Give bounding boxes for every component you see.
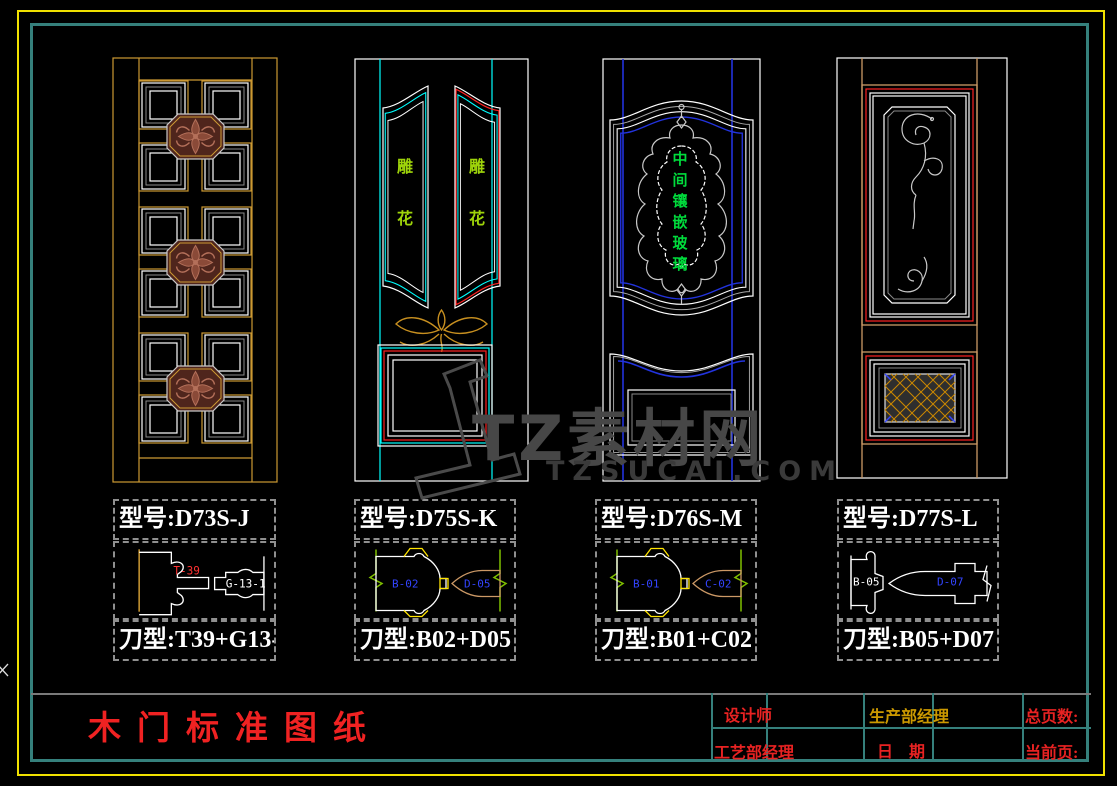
glass-text: 璃 xyxy=(672,255,687,273)
door-drawing-d73s-j xyxy=(112,57,278,483)
model-label-box-2: 型号:D75S-K xyxy=(354,499,516,540)
door-drawing-d77s-l xyxy=(836,57,1008,479)
current-page-label: 当前页: xyxy=(1025,739,1078,763)
title-block-vline xyxy=(863,693,865,762)
cutter-profile-3: B-01 C-02 xyxy=(597,543,755,618)
svg-text:T-39: T-39 xyxy=(173,564,200,577)
title-block-mid-line xyxy=(711,727,1091,729)
sheet-title: 木门标准图纸 xyxy=(88,701,382,749)
profile-section-box-4: B-05 D-07 xyxy=(837,541,999,620)
arched-panel-left xyxy=(383,86,428,308)
total-pages-label: 总页数: xyxy=(1025,703,1078,727)
production-manager-label: 生产部经理 xyxy=(869,703,949,727)
process-manager-label: 工艺部经理 xyxy=(714,739,794,763)
knife-label-box-1: 刀型:T39+G13-1 xyxy=(113,620,276,661)
svg-text:D-07: D-07 xyxy=(937,576,964,589)
title-block-vline xyxy=(1022,693,1024,762)
carve-text: 雕 xyxy=(469,157,485,176)
model-label-box-3: 型号:D76S-M xyxy=(595,499,757,540)
svg-text:D-05: D-05 xyxy=(464,578,491,591)
glass-text: 中 xyxy=(672,150,687,168)
carve-text: 花 xyxy=(397,209,413,228)
profile-section-box-2: B-02 D-05 xyxy=(354,541,516,620)
knife-label-box-4: 刀型:B05+D07 xyxy=(837,620,999,661)
profile-section-box-3: B-01 C-02 xyxy=(595,541,757,620)
glass-text: 玻 xyxy=(672,234,688,252)
title-block-vline xyxy=(711,693,713,762)
knife-label-box-3: 刀型:B01+C02 xyxy=(595,620,757,661)
svg-text:B-02: B-02 xyxy=(392,578,419,591)
model-label-box-1: 型号:D73S-J xyxy=(113,499,276,540)
watermark-domain: TZSUCAI.COM xyxy=(546,456,844,487)
cad-sheet: 雕 花 雕 花 xyxy=(0,0,1117,786)
knife-label-box-2: 刀型:B02+D05 xyxy=(354,620,516,661)
svg-text:C-02: C-02 xyxy=(705,578,732,591)
floral-ornament xyxy=(396,310,487,352)
carve-text: 雕 xyxy=(397,157,413,176)
arched-panel-right xyxy=(455,86,500,308)
glass-text: 嵌 xyxy=(672,213,687,231)
carve-text: 花 xyxy=(469,209,485,228)
glass-text: 镶 xyxy=(672,192,688,210)
upper-panel xyxy=(862,85,977,325)
model-label-box-4: 型号:D77S-L xyxy=(837,499,999,540)
svg-text:B-01: B-01 xyxy=(633,578,660,591)
profile-section-box-1: T-39 G-13-1 xyxy=(113,541,276,620)
svg-text:G-13-1: G-13-1 xyxy=(226,578,266,591)
svg-text:B-05: B-05 xyxy=(853,576,880,589)
cutter-profile-2: B-02 D-05 xyxy=(356,543,514,618)
cutter-profile-4: B-05 D-07 xyxy=(839,543,997,618)
lattice-grille xyxy=(885,374,955,422)
scroll-ornament-top xyxy=(902,114,942,229)
glass-text: 间 xyxy=(672,171,687,189)
crosshair-mark xyxy=(0,659,13,685)
cutter-profile-1: T-39 G-13-1 xyxy=(115,543,274,618)
designer-label: 设计师 xyxy=(724,702,772,726)
scroll-ornament-bottom xyxy=(898,257,927,292)
date-label: 日 期 xyxy=(877,738,925,762)
lower-panel xyxy=(862,352,977,444)
